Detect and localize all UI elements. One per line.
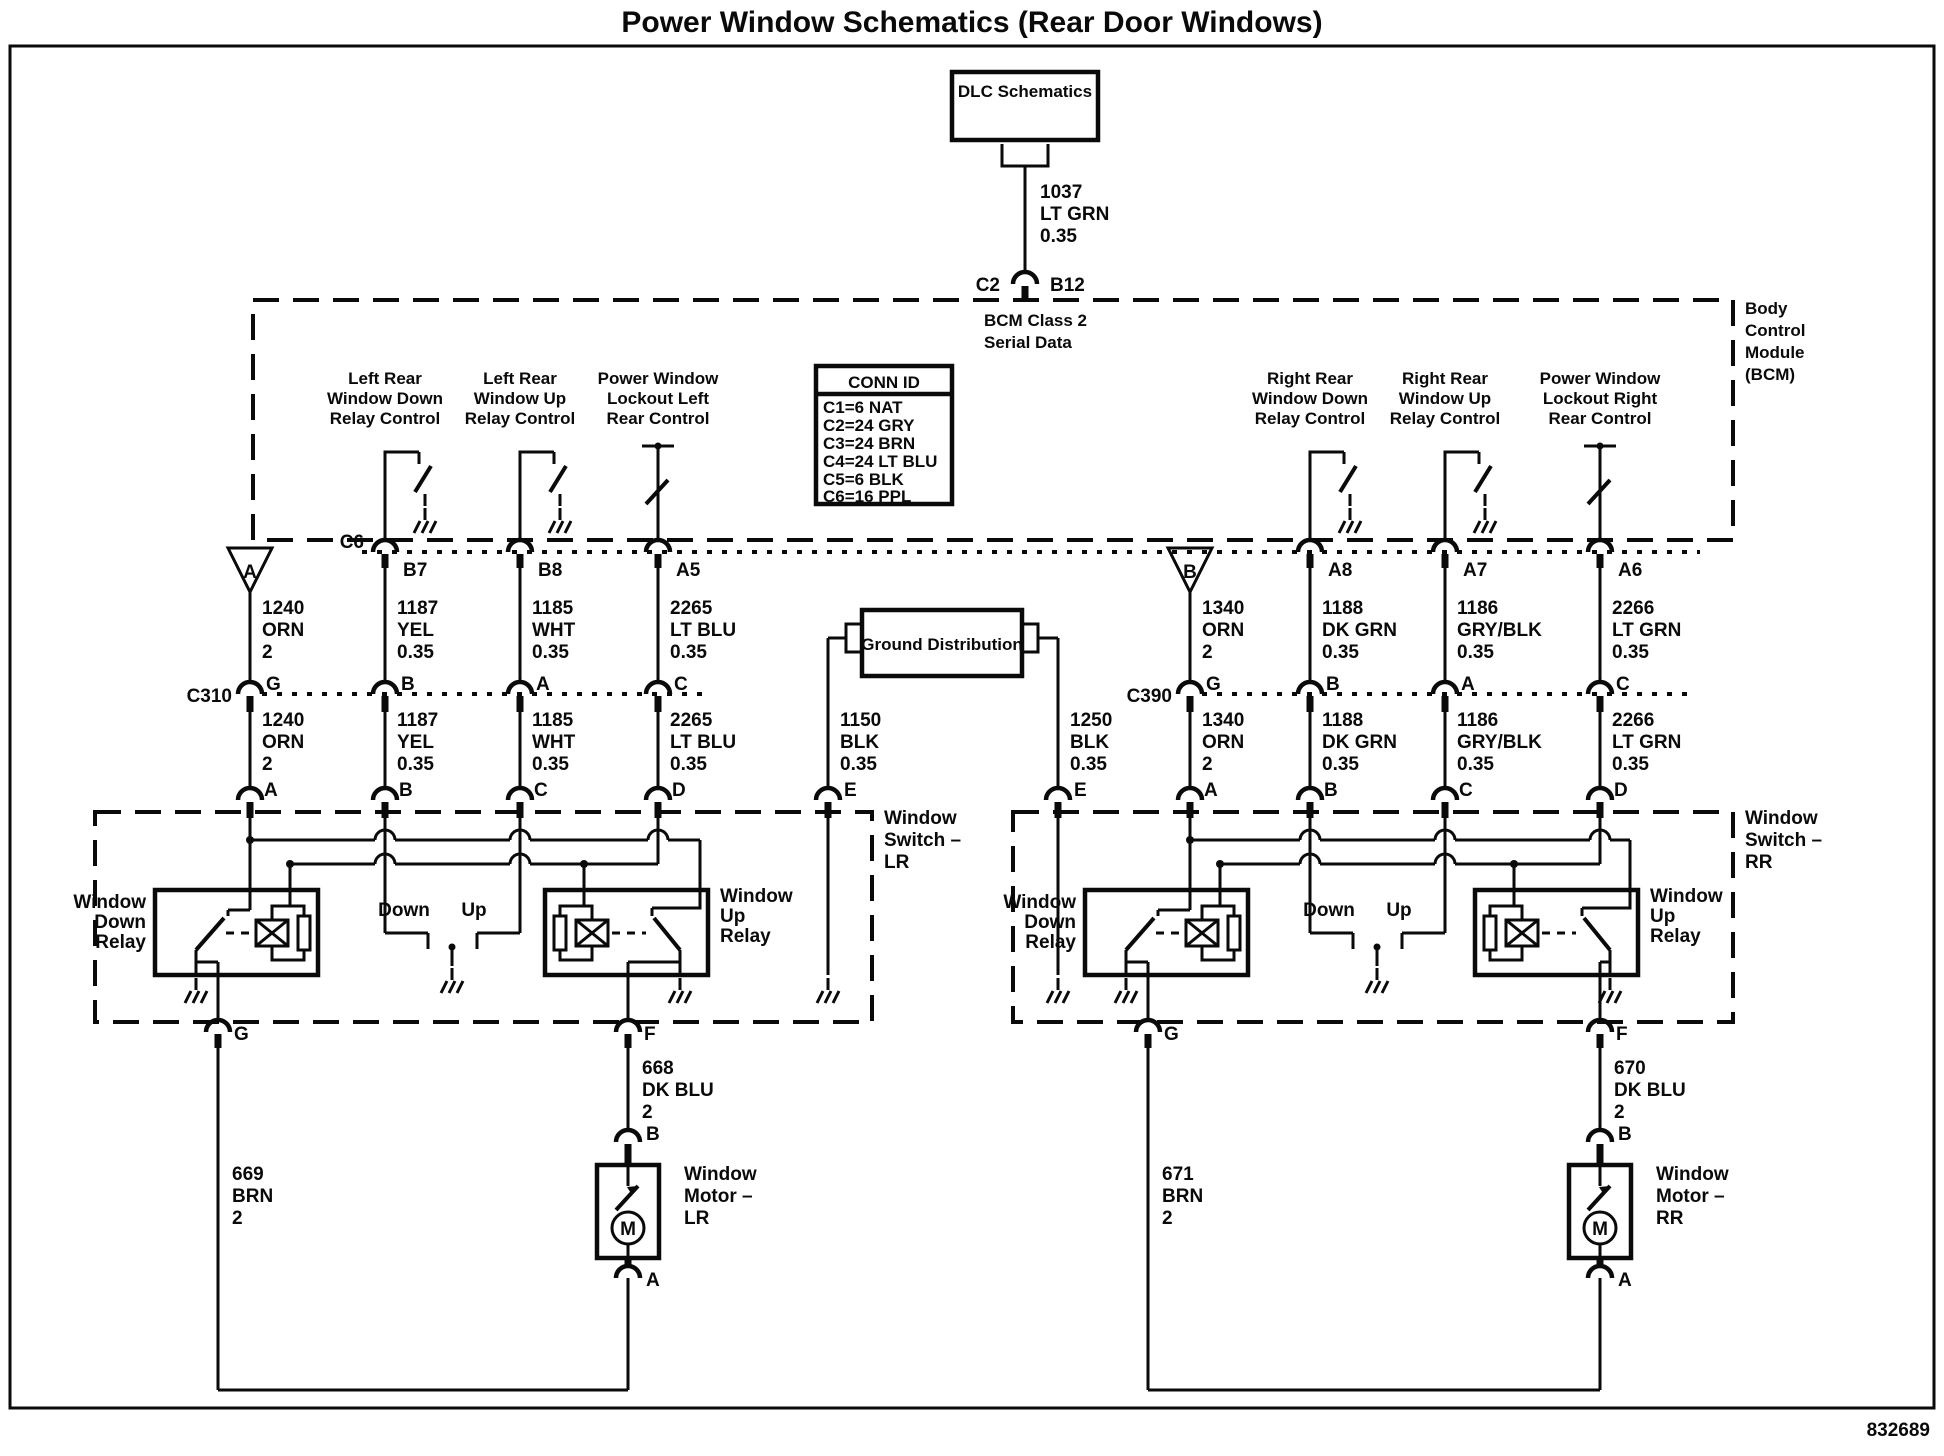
wire-gauge: 0.35 (532, 642, 569, 663)
bcm-name: (BCM) (1745, 365, 1795, 384)
wire-color: ORN (262, 732, 304, 753)
wire-circuit: 1250 (1070, 710, 1112, 731)
wire-circuit: 668 (642, 1058, 674, 1079)
down-relay-rr (1085, 818, 1248, 1020)
right-bracket (1022, 624, 1038, 652)
wire-color: GRY/BLK (1457, 732, 1542, 753)
relay-name: Relay (95, 932, 146, 953)
bcm-connector-row: C6 B7 B8 A5 A8 A7 A6 (340, 532, 1700, 581)
down-contact-label: Down (378, 900, 430, 921)
pin-label: A8 (1328, 560, 1352, 581)
wire-circuit: 1188 (1322, 598, 1363, 619)
pin-label: C (1459, 780, 1473, 801)
rocker-contacts-lr: Down Up (378, 818, 520, 993)
relay-name: Relay (1025, 932, 1076, 953)
wire-color: YEL (397, 732, 434, 753)
dlc-connector-bracket (1002, 144, 1048, 166)
connector-pin-icon (238, 682, 262, 694)
relay-name: Up (1650, 906, 1675, 927)
up-contact-label: Up (461, 900, 486, 921)
pin-label: A (646, 1270, 660, 1291)
rocker-contacts-rr: Down Up (1303, 818, 1445, 993)
schematic-page: Power Window Schematics (Rear Door Windo… (0, 0, 1944, 1456)
relay-contact-blade (1126, 918, 1154, 950)
wire-circuit: 2266 (1612, 710, 1654, 731)
pin-label: F (644, 1024, 656, 1045)
pin-label: E (844, 780, 857, 801)
output-label: Lockout Right (1543, 389, 1658, 408)
wire-color: ORN (1202, 620, 1244, 641)
ground-icon (817, 978, 839, 1003)
wire-gauge: 0.35 (1322, 754, 1359, 775)
wire-gauge: 2 (1162, 1208, 1173, 1229)
relay-name: Relay (720, 926, 771, 947)
wire-color: ORN (262, 620, 304, 641)
down-contact-label: Down (1303, 900, 1355, 921)
wire-circuit: 1340 (1202, 598, 1244, 619)
relay-contact-blade (1584, 918, 1610, 950)
pin-label: D (1614, 780, 1628, 801)
power-feed-triangles: A B (228, 548, 1212, 592)
motor-letter: M (1592, 1219, 1608, 1240)
ground-icon (1047, 978, 1069, 1003)
pin-label: C (1616, 674, 1630, 695)
motor-name: Window (1656, 1164, 1729, 1185)
conn-id-table: CONN ID C1=6 NAT C2=24 GRY C3=24 BRN C4=… (816, 366, 952, 506)
up-relay-lr (545, 864, 708, 1020)
switch-name: Window (1745, 808, 1818, 829)
bcm-name: Module (1745, 343, 1805, 362)
wire-circuit: 1340 (1202, 710, 1244, 731)
pin-label: B (646, 1124, 660, 1145)
wire-circuit: 2265 (670, 598, 713, 619)
pin-label: A (536, 674, 550, 695)
ground-icon (414, 508, 436, 533)
ground-icon (1115, 978, 1137, 1003)
wire-color: BRN (1162, 1186, 1203, 1207)
output-label: Window Up (1399, 389, 1491, 408)
inline-connector-c390: C390 G B A C (1127, 674, 1690, 712)
bcm-name: Body (1745, 299, 1788, 318)
relay-resistor-icon (1228, 916, 1240, 950)
motor-name: Motor – (1656, 1186, 1725, 1207)
pin-label: B7 (403, 560, 427, 581)
wire-color: LT GRN (1612, 732, 1681, 753)
wire-gauge: 0.35 (1612, 642, 1649, 663)
wire-circuit: 1185 (532, 710, 574, 731)
pin-label: B (399, 780, 413, 801)
wire-circuit: 669 (232, 1164, 264, 1185)
reference-number: 832689 (1867, 1420, 1930, 1441)
wire-circuit: 2266 (1612, 598, 1654, 619)
pin-label: B (1326, 674, 1340, 695)
wire-gauge: 0.35 (840, 754, 877, 775)
output-label: Rear Control (607, 409, 710, 428)
motor-name: Window (684, 1164, 757, 1185)
triangle-label: B (1183, 562, 1197, 583)
relay-name: Window (1003, 892, 1076, 913)
motor-name: LR (684, 1208, 710, 1229)
wire-gauge: 0.35 (397, 642, 434, 663)
wire-color: GRY/BLK (1457, 620, 1542, 641)
wire-circuit: 1188 (1322, 710, 1363, 731)
pin-label: B (1618, 1124, 1632, 1145)
wire-circuit: 1187 (397, 598, 438, 619)
pin-label: C (674, 674, 688, 695)
ground-icon (441, 968, 463, 993)
wire-color: BLK (1070, 732, 1109, 753)
relay-name: Down (94, 912, 146, 933)
pin-label: G (234, 1024, 249, 1045)
up-contact-label: Up (1386, 900, 1411, 921)
bcm-name: Control (1745, 321, 1805, 340)
relay-resistor-icon (1484, 916, 1496, 950)
wire-gauge: 0.35 (1457, 754, 1494, 775)
wire-gauge: 0.35 (1457, 642, 1494, 663)
pin-label: B8 (538, 560, 562, 581)
motor-letter: M (620, 1219, 636, 1240)
conn-id-row: C3=24 BRN (823, 434, 915, 453)
output-label: Left Rear (348, 369, 422, 388)
motor-circuit-rr: 671 BRN 2 670 DK BLU 2 B M Window Motor … (1148, 1048, 1729, 1390)
pin-label: C2 (976, 275, 1000, 296)
output-label: Relay Control (330, 409, 441, 428)
relay-name: Down (1024, 912, 1076, 933)
wire-circuit: 1187 (397, 710, 438, 731)
conn-id-row: C6=16 PPL (823, 487, 911, 506)
wire-color: LT GRN (1040, 204, 1109, 225)
wire-color: DK BLU (1614, 1080, 1686, 1101)
switch-name: Switch – (884, 830, 961, 851)
wire-gauge: 2 (232, 1208, 243, 1229)
wire-gauge: 2 (262, 754, 273, 775)
conn-id-row: C2=24 GRY (823, 416, 915, 435)
ground-icon (1366, 968, 1388, 993)
ground-icon (549, 508, 571, 533)
output-label: Window Down (327, 389, 443, 408)
left-bracket (846, 624, 862, 652)
switch-boundary (1013, 812, 1733, 1022)
ground-distribution-label: Ground Distribution (861, 635, 1022, 654)
wire-color: DK GRN (1322, 620, 1397, 641)
conn-id-row: C1=6 NAT (823, 398, 903, 417)
pin-label: B12 (1050, 275, 1085, 296)
wire-circuit: 670 (1614, 1058, 1646, 1079)
relay-name: Window (1650, 886, 1723, 907)
wire-gauge: 2 (1202, 642, 1213, 663)
switch-name: Switch – (1745, 830, 1822, 851)
connector-pin-icon (1178, 682, 1202, 694)
wire-color: YEL (397, 620, 434, 641)
ground-icon (669, 978, 691, 1003)
wire-circuit: 671 (1162, 1164, 1194, 1185)
switch-name: RR (1745, 852, 1773, 873)
motor-circuit-lr: 669 BRN 2 668 DK BLU 2 B M Window Motor … (218, 1048, 757, 1390)
wire-circuit: 2265 (670, 710, 713, 731)
wire-gauge: 0.35 (397, 754, 434, 775)
output-label: Power Window (1540, 369, 1662, 388)
wire-gauge: 2 (1202, 754, 1213, 775)
wire-gauge: 2 (1614, 1102, 1625, 1123)
ground-icon (1339, 508, 1361, 533)
pin-label: A7 (1463, 560, 1487, 581)
wire-circuit: 1186 (1457, 710, 1498, 731)
wire-gauge: 0.35 (1070, 754, 1107, 775)
window-switch-rr: Window Switch – RR Window Down Relay Dow… (1003, 808, 1822, 1048)
output-label: Rear Control (1549, 409, 1652, 428)
pin-label: A (1461, 674, 1475, 695)
relay-name: Relay (1650, 926, 1701, 947)
wire-gauge: 0.35 (1612, 754, 1649, 775)
dlc-schematics-block: DLC Schematics 1037 LT GRN 0.35 C2 B12 B… (952, 72, 1109, 352)
wire-color: BRN (232, 1186, 273, 1207)
switch-name: LR (884, 852, 910, 873)
output-label: Power Window (598, 369, 720, 388)
down-relay-lr (155, 818, 318, 1020)
triangle-label: A (243, 562, 257, 583)
wire-gauge: 0.35 (670, 754, 707, 775)
pin-label: G (1164, 1024, 1179, 1045)
relay-name: Window (73, 892, 146, 913)
relay-contact-blade (654, 918, 680, 950)
wire-gauge: 2 (642, 1102, 653, 1123)
wire-gauge: 0.35 (670, 642, 707, 663)
wire-color: LT BLU (670, 620, 736, 641)
wire-gauge: 0.35 (1322, 642, 1359, 663)
switch-name: Window (884, 808, 957, 829)
pin-label: G (1206, 674, 1221, 695)
wire-gauge: 0.35 (532, 754, 569, 775)
ground-icon (1599, 978, 1621, 1003)
wire-circuit: 1185 (532, 598, 574, 619)
pin-label: F (1616, 1024, 1628, 1045)
wire-circuit: 1150 (840, 710, 881, 731)
wire-circuit: 1240 (262, 710, 304, 731)
ground-icon (1474, 508, 1496, 533)
output-label: Window Down (1252, 389, 1368, 408)
pin-label: B (401, 674, 415, 695)
relay-resistor-icon (298, 916, 310, 950)
conn-id-row: C4=24 LT BLU (823, 452, 937, 471)
wire-gauge: 2 (262, 642, 273, 663)
wire-color: WHT (532, 732, 576, 753)
wire-color: DK GRN (1322, 732, 1397, 753)
wire-color: LT GRN (1612, 620, 1681, 641)
connector-label: C310 (187, 686, 232, 707)
wire-color: WHT (532, 620, 576, 641)
connector-pin-icon (1013, 272, 1037, 284)
pin-label: A (1618, 1270, 1632, 1291)
relay-name: Window (720, 886, 793, 907)
ground-distribution-block: Ground Distribution 1150 BLK 0.35 1250 B… (828, 610, 1112, 788)
output-label: Relay Control (1255, 409, 1366, 428)
output-label: Relay Control (1390, 409, 1501, 428)
wire-color: LT BLU (670, 732, 736, 753)
relay-contact-blade (196, 918, 224, 950)
window-motor-lr: M (597, 1165, 659, 1266)
pin-label: C (534, 780, 548, 801)
output-label: Window Up (474, 389, 566, 408)
wire-gauge: 0.35 (1040, 226, 1077, 247)
output-label: Lockout Left (607, 389, 709, 408)
connector-label: C390 (1127, 686, 1172, 707)
wire-circuit: 1037 (1040, 182, 1082, 203)
pin-label: D (672, 780, 686, 801)
dlc-label: DLC Schematics (958, 82, 1092, 101)
wire-circuit: 1240 (262, 598, 304, 619)
up-relay-rr (1475, 864, 1638, 1020)
pin-label: G (266, 674, 281, 695)
window-switch-lr: Window Switch – LR Window Down Relay Dow… (73, 808, 961, 1048)
bcm-output-labels: Left Rear Window Down Relay Control Left… (327, 369, 1661, 428)
pin-label: A (264, 780, 278, 801)
relay-name: Up (720, 906, 745, 927)
output-label: Left Rear (483, 369, 557, 388)
pin-label: A6 (1618, 560, 1642, 581)
output-label: Right Rear (1267, 369, 1353, 388)
motor-name: RR (1656, 1208, 1684, 1229)
pin-label: A5 (676, 560, 701, 581)
conn-id-title: CONN ID (848, 373, 920, 392)
wire-color: DK BLU (642, 1080, 714, 1101)
serial-data-label: Serial Data (984, 333, 1072, 352)
bcm-driver-symbols (385, 443, 1616, 541)
schematic-canvas: Power Window Schematics (Rear Door Windo… (0, 0, 1944, 1456)
wire-circuit: 1186 (1457, 598, 1498, 619)
page-title: Power Window Schematics (Rear Door Windo… (621, 6, 1322, 39)
ground-icon (185, 978, 207, 1003)
motor-name: Motor – (684, 1186, 753, 1207)
wire-color: BLK (840, 732, 879, 753)
output-label: Right Rear (1402, 369, 1488, 388)
pin-label: B (1324, 780, 1338, 801)
window-motor-rr: M (1569, 1165, 1631, 1266)
wire-color: ORN (1202, 732, 1244, 753)
pin-label: E (1074, 780, 1087, 801)
relay-resistor-icon (554, 916, 566, 950)
pin-label: A (1204, 780, 1218, 801)
serial-data-label: BCM Class 2 (984, 311, 1087, 330)
output-label: Relay Control (465, 409, 576, 428)
inline-connector-c310: C310 G B A C (187, 674, 706, 712)
connector-pin-icon (646, 682, 670, 694)
connector-label: C6 (340, 532, 364, 553)
